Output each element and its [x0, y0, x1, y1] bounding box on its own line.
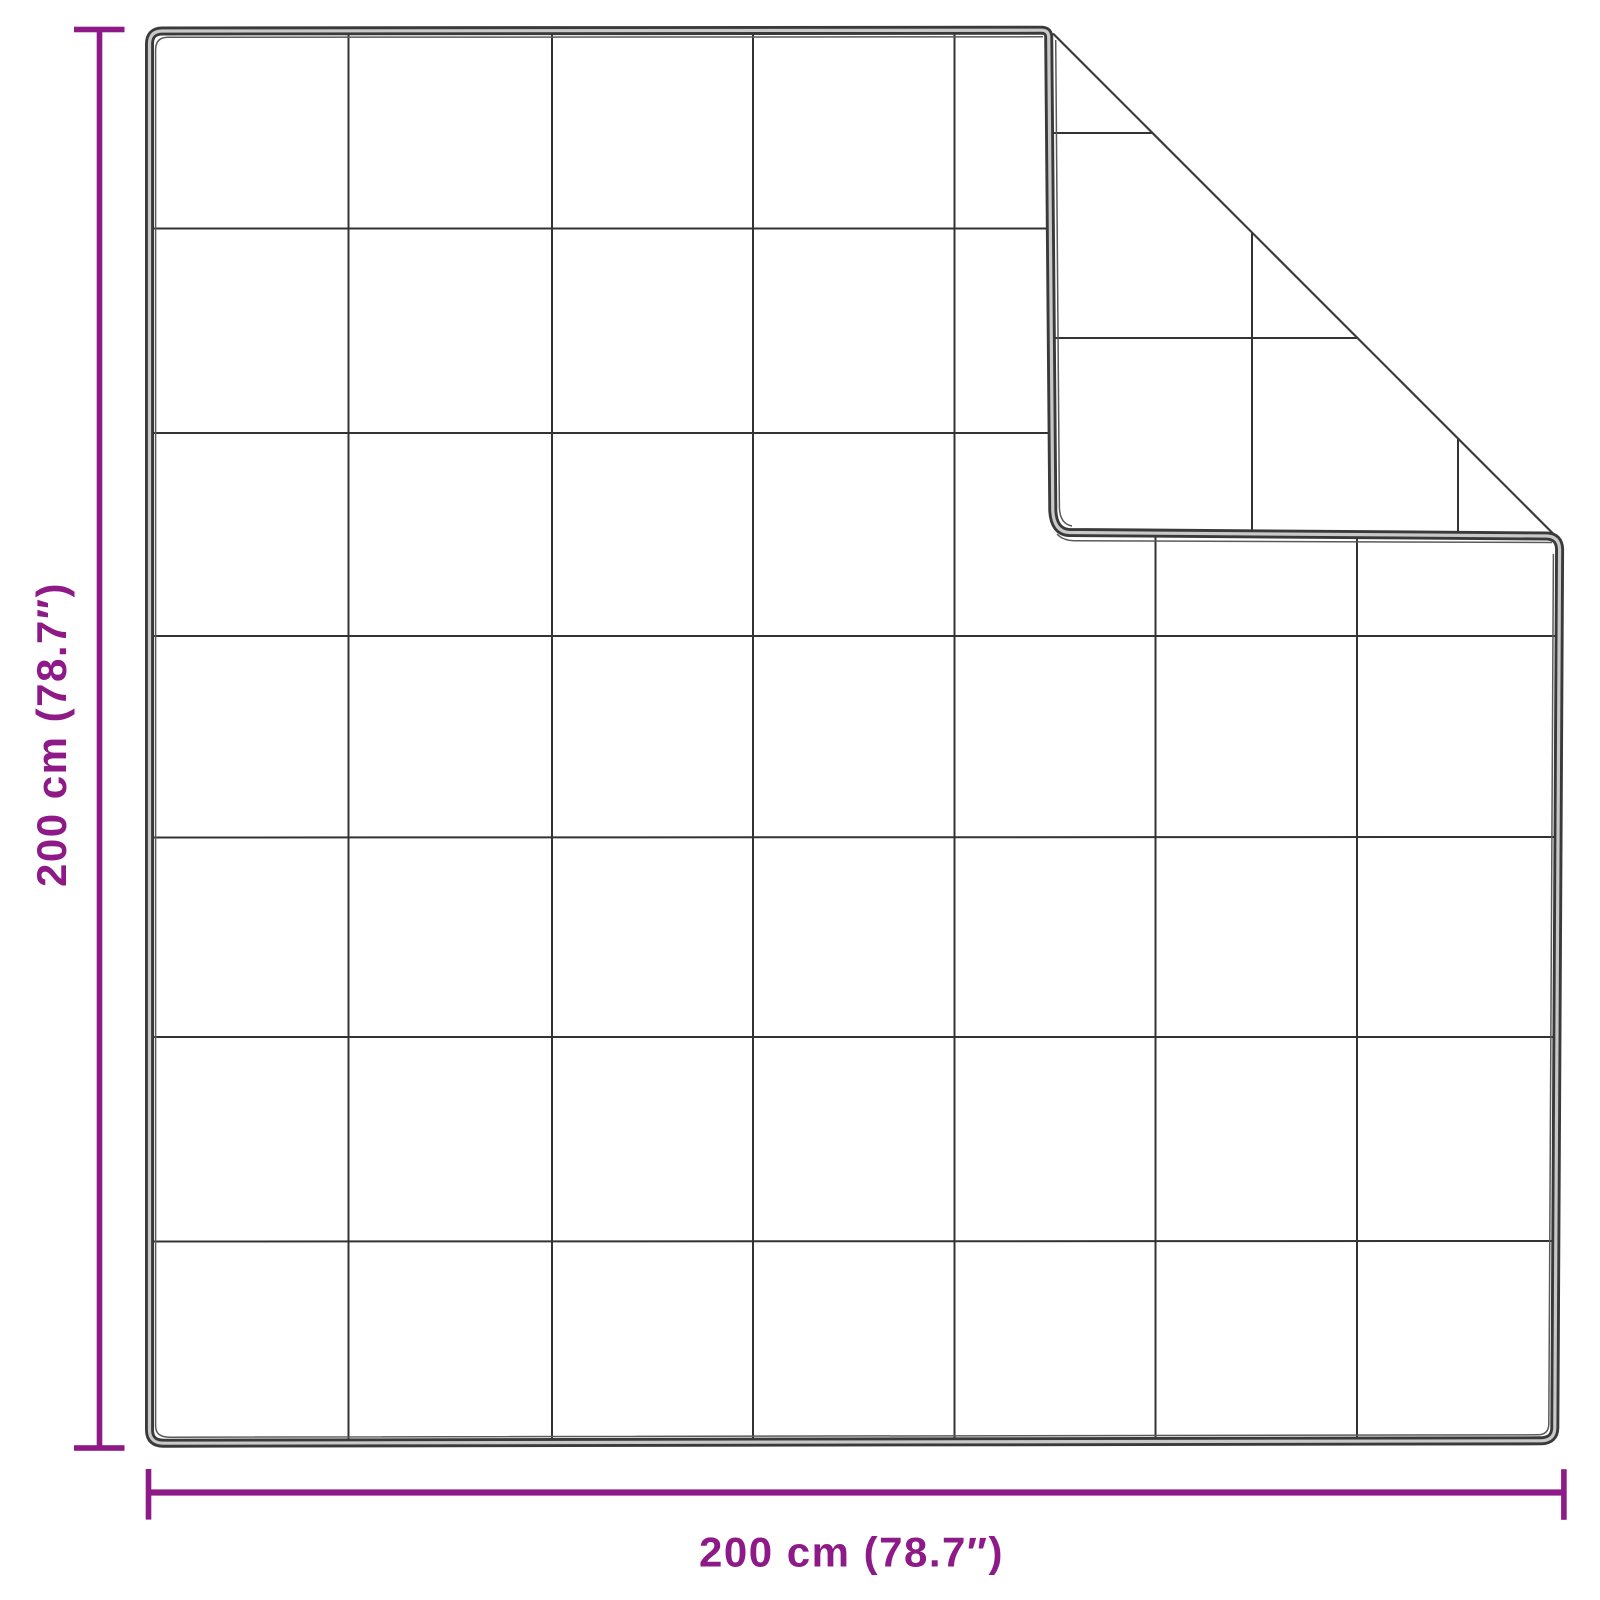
svg-text:200 cm (78.7″): 200 cm (78.7″) [699, 1529, 1004, 1576]
svg-text:200 cm (78.7″): 200 cm (78.7″) [28, 582, 75, 887]
